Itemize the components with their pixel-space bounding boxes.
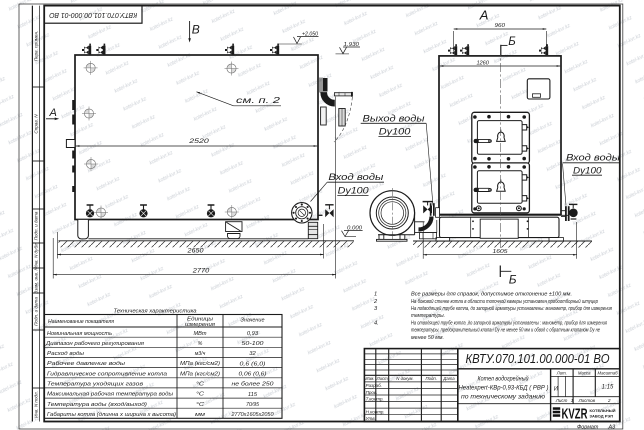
svg-text:Dy100: Dy100 [573, 165, 602, 175]
svg-text:температуры, предохранительный: температуры, предохранительный клапан Dy… [411, 327, 600, 334]
svg-text:Котел водогрейный: Котел водогрейный [478, 375, 530, 382]
svg-text:70/95: 70/95 [246, 402, 259, 408]
svg-text:И: И [554, 387, 559, 393]
svg-text:Лист: Лист [376, 376, 388, 381]
svg-text:В: В [192, 23, 200, 37]
svg-text:температуры.: температуры. [411, 313, 445, 319]
svg-text:МВт: МВт [194, 331, 208, 337]
svg-text:0,06 (0,6): 0,06 (0,6) [239, 372, 267, 378]
svg-text:м3/ч: м3/ч [195, 351, 206, 357]
svg-text:0,93: 0,93 [247, 331, 259, 337]
svg-text:°С: °С [196, 382, 204, 388]
svg-text:Температура уходящих газов: Температура уходящих газов [47, 382, 143, 388]
svg-text:Листов: Листов [578, 398, 596, 403]
svg-text:Heatexpert-КВр-0,93-КБД ( РВР: Heatexpert-КВр-0,93-КБД ( РВР ) [459, 386, 549, 392]
svg-text:1: 1 [374, 292, 377, 298]
svg-text:Выход воды: Выход воды [363, 113, 425, 123]
svg-text:Температура воды (вход/выход): Температура воды (вход/выход) [47, 402, 147, 408]
svg-text:Масса: Масса [578, 370, 591, 375]
svg-text:Подп.: Подп. [425, 376, 436, 381]
svg-text:Максимальная рабочая температу: Максимальная рабочая температура воды [47, 392, 173, 398]
svg-text:2: 2 [607, 398, 611, 403]
svg-text:Изм.: Изм. [365, 376, 374, 381]
svg-text:мм: мм [195, 412, 206, 418]
svg-text:2520: 2520 [188, 138, 210, 145]
svg-text:А3: А3 [608, 424, 616, 430]
svg-text:Инв. N дубл.: Инв. N дубл. [33, 242, 38, 269]
svg-text:менее 50 мм.: менее 50 мм. [411, 335, 444, 341]
svg-text:Dy100: Dy100 [338, 186, 369, 196]
svg-text:А: А [479, 8, 489, 23]
svg-text:Масштаб: Масштаб [597, 370, 618, 375]
svg-text:1:15: 1:15 [602, 385, 614, 391]
svg-text:Т.контр.: Т.контр. [366, 396, 384, 401]
svg-text:Лист: Лист [555, 398, 568, 403]
svg-text:Лит.: Лит. [556, 370, 567, 375]
svg-text:2650: 2650 [186, 248, 204, 254]
svg-text:Подп. и дата: Подп. и дата [33, 297, 38, 326]
svg-text:КВТУ.070.101.00.000-01 ВО: КВТУ.070.101.00.000-01 ВО [466, 352, 610, 366]
svg-text:Б: Б [509, 273, 517, 287]
svg-text:не более 250: не более 250 [232, 382, 274, 388]
svg-text:Б: Б [508, 36, 516, 48]
svg-text:2770х1605х2050: 2770х1605х2050 [230, 412, 273, 418]
svg-text:1260: 1260 [476, 60, 489, 66]
svg-text:МПа (кгс/см2): МПа (кгс/см2) [180, 371, 220, 377]
svg-text:по техническому заданию: по техническому заданию [461, 395, 546, 401]
svg-text:Вход воды: Вход воды [328, 172, 383, 182]
svg-text:Габариты котла (длинна х ширин: Габариты котла (длинна х ширина х высота… [47, 412, 176, 418]
svg-text:2770: 2770 [192, 268, 211, 274]
svg-text:Подп. и дата: Подп. и дата [33, 211, 38, 240]
svg-text:измерения: измерения [185, 322, 215, 328]
svg-text:Справ. N: Справ. N [33, 114, 38, 134]
svg-text:Формат: Формат [577, 424, 599, 430]
svg-text:Н.контр.: Н.контр. [366, 409, 385, 414]
svg-text:Dy100: Dy100 [379, 126, 411, 136]
svg-text:А: А [49, 107, 57, 119]
svg-text:МПа (кгс/см2): МПа (кгс/см2) [180, 361, 220, 367]
svg-text:%: % [198, 341, 203, 347]
svg-text:Гидравлическое сопротивление к: Гидравлическое сопротивление котла [47, 371, 167, 377]
svg-text:Рабочее давление воды: Рабочее давление воды [47, 361, 125, 367]
svg-text:1605: 1605 [493, 249, 509, 255]
svg-text:На отводящей трубе котла ,до з: На отводящей трубе котла ,до запорной ар… [411, 319, 607, 326]
svg-text:115: 115 [248, 392, 258, 398]
svg-text:Диапазон рабочего регулировани: Диапазон рабочего регулирования [45, 341, 144, 347]
svg-text:KVZR: KVZR [562, 406, 588, 422]
svg-text:Наименование показателя: Наименование показателя [48, 319, 114, 325]
svg-text:Утв.: Утв. [366, 416, 376, 421]
svg-text:Все размеры для справок, допус: Все размеры для справок, допустимое откл… [411, 292, 572, 298]
svg-text:Значение: Значение [241, 317, 265, 323]
svg-text:Перв. примен.: Перв. примен. [33, 31, 38, 62]
svg-text:ЗАВОД РЭП: ЗАВОД РЭП [590, 413, 614, 418]
svg-text:0,6 (6,0): 0,6 (6,0) [240, 361, 266, 367]
svg-text:N докум.: N докум. [396, 376, 413, 381]
svg-text:°С: °С [196, 402, 204, 408]
svg-text:32: 32 [249, 351, 256, 357]
svg-text:Разраб.: Разраб. [366, 383, 382, 388]
svg-text:960: 960 [495, 23, 506, 29]
svg-text:Взам. инв. N: Взам. инв. N [33, 266, 38, 293]
svg-text:КВТУ.070.101.00.000-01 ВО: КВТУ.070.101.00.000-01 ВО [49, 11, 138, 18]
svg-text:На подводящей трубе котла, д: На подводящей трубе котла, до запорной а… [411, 305, 612, 312]
svg-text:Номинальная мощность: Номинальная мощность [47, 331, 112, 337]
svg-text:см. п. 2: см. п. 2 [236, 96, 281, 105]
svg-text:50-100: 50-100 [242, 341, 265, 347]
svg-text:Пров.: Пров. [366, 390, 378, 395]
svg-text:°С: °С [196, 392, 204, 398]
svg-text:Инв. N подл.: Инв. N подл. [33, 391, 38, 418]
svg-text:На боковой стенке котла в обла: На боковой стенке котла в области топочн… [411, 298, 598, 305]
svg-text:Расход воды: Расход воды [47, 351, 84, 357]
svg-text:4.: 4. [374, 320, 379, 326]
svg-text:Дата: Дата [442, 376, 455, 381]
svg-text:Вход воды: Вход воды [566, 153, 620, 163]
svg-text:Техническая характеристика: Техническая характеристика [114, 308, 198, 314]
